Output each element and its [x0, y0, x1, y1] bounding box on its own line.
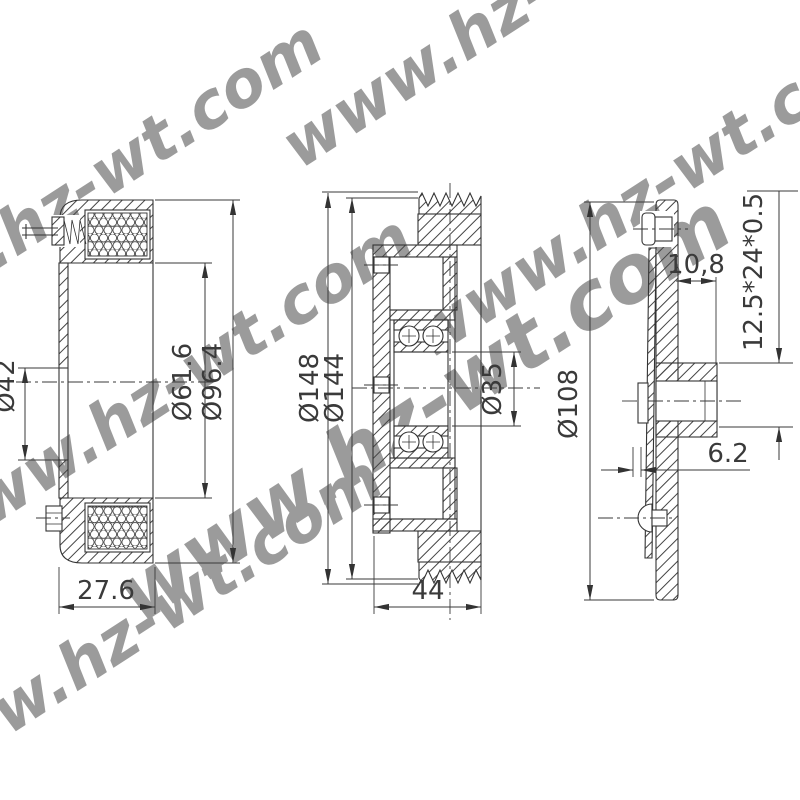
dim-label-bearing-bore: Ø35	[478, 362, 508, 416]
dim-label-hub-offset: 10,8	[667, 250, 725, 280]
housing-wall-lower	[59, 460, 68, 498]
lead-grommet	[52, 217, 64, 245]
dim-label-plate-od: Ø108	[554, 369, 584, 439]
dim-label-air-gap: 6.2	[707, 439, 748, 469]
technical-drawing-page: www.hz-wt.com www.hz-wt.com www.hz-wt.co…	[0, 0, 800, 800]
coil-cavity-bottom	[390, 468, 443, 519]
terminal-stud	[46, 506, 62, 531]
housing-wall-upper	[59, 263, 68, 368]
clutch-assembly-drawing: www.hz-wt.com www.hz-wt.com www.hz-wt.co…	[0, 0, 800, 800]
friction-band-top	[373, 245, 457, 257]
pulley-rim-shoulder-bottom	[418, 531, 481, 562]
bearing-top	[394, 320, 448, 352]
dim-label-pulley-groove-od: Ø144	[320, 353, 350, 423]
dim-label-coil-winding-od: Ø61.6	[168, 343, 198, 421]
pulley-rim-shoulder-top	[418, 214, 481, 245]
bearing-seat-top	[390, 310, 455, 320]
coil-winding-bottom	[88, 506, 147, 549]
pulley-front-flange	[373, 257, 390, 533]
friction-band-bottom	[373, 519, 457, 531]
dim-label-coil-housing-od: Ø96.4	[198, 343, 228, 421]
dim-label-pulley-width: 44	[411, 576, 444, 606]
dim-label-coil-depth: 27.6	[77, 576, 135, 606]
spline-slot	[638, 383, 648, 423]
dim-label-spline-spec: 12.5*24*0.5	[739, 193, 769, 351]
bearing-seat-bottom	[390, 458, 455, 468]
coil-winding-top	[88, 213, 147, 256]
dim-label-coil-bore: Ø42	[0, 359, 21, 413]
bearing-bottom	[394, 426, 448, 458]
